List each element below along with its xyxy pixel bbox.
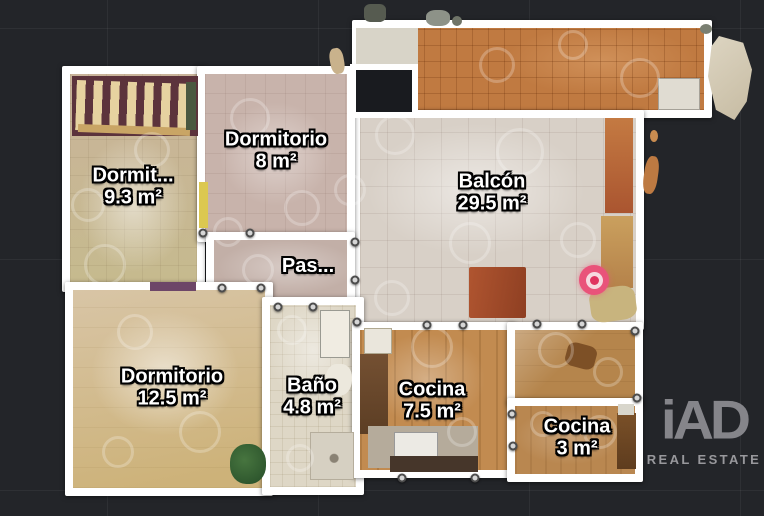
room-area: 4.8 m² [283,397,341,419]
room-label-dormitorio-9-3: Dormit... 9.3 m² [92,165,173,210]
terrace-scan-fragment [708,36,752,120]
iad-logo-text: iAD [644,393,764,448]
scan-watermark-ring [374,280,410,316]
floorplan-canvas: Dormit... 9.3 m² Dormitorio 8 m² Balcón … [0,0,764,516]
marker-core-dot [590,276,599,285]
shower-tray [310,432,354,480]
room-name: Dormitorio [225,129,327,151]
wall-junction-dot [274,303,283,312]
wall-junction-dot [351,276,360,285]
wall-junction-dot [351,238,360,247]
washing-machine [320,310,350,358]
scan-watermark-ring [411,326,453,368]
scan-watermark-ring [558,30,588,60]
wall-junction-dot [509,442,518,451]
room-label-balcon: Balcón 29.5 m² [458,171,527,216]
kitchen-cabinet-right [617,413,636,469]
wall-junction-dot [398,474,407,483]
bed-side-strip [186,82,196,130]
terrace-furniture-box [658,78,700,110]
wall-junction-dot [633,394,642,403]
kitchen-cabinet-dark [360,354,388,434]
purple-furniture-strip [150,282,196,291]
room-area: 7.5 m² [399,401,466,423]
room-label-dormitorio-12-5: Dormitorio 12.5 m² [121,366,223,411]
scan-watermark-ring [179,411,221,453]
scan-noise-blob [426,10,450,26]
scan-watermark-ring [102,436,134,468]
scan-watermark-ring [277,315,307,345]
wall-junction-dot [246,229,255,238]
room-label-bano: Baño 4.8 m² [283,375,341,420]
room-area: 3 m² [544,438,611,460]
wall-junction-dot [199,229,208,238]
scan-watermark-ring [242,254,274,286]
room-name: Dormitorio [121,366,223,388]
room-label-dormitorio-8: Dormitorio 8 m² [225,129,327,174]
wall-junction-dot [309,303,318,312]
wall-junction-dot [423,321,432,330]
room-area: 29.5 m² [458,193,527,215]
scan-noise-blob [650,130,658,142]
scan-watermark-ring [560,222,596,258]
small-white-appliance [618,404,634,415]
room-label-cocina-3: Cocina 3 m² [544,416,611,461]
wall-junction-dot [508,410,517,419]
room-label-cocina-7-5: Cocina 7.5 m² [399,379,466,424]
room-name: Baño [283,375,341,397]
iad-logo-tagline: REAL ESTATE [644,452,764,467]
scan-watermark-ring [538,332,574,368]
terrace-black-opening [350,64,418,118]
wall-junction-dot [257,284,266,293]
scan-noise-blob [700,24,712,34]
room-area: 8 m² [225,151,327,173]
wall-junction-dot [471,474,480,483]
room-name: Cocina [544,416,611,438]
scan-noise-blob [452,16,462,26]
fridge [364,328,392,354]
room-area: 9.3 m² [92,187,173,209]
scan-noise-blob [641,155,660,195]
room-name: Pas... [282,255,334,277]
scan-watermark-ring [117,314,153,350]
camera-position-marker[interactable] [579,265,609,295]
room-name: Dormit... [92,165,173,187]
scan-watermark-ring [375,115,415,155]
scan-watermark-ring [593,357,623,387]
scan-watermark-ring [479,47,515,83]
scan-watermark-ring [284,190,320,226]
wall-junction-dot [533,320,542,329]
wall-junction-dot [631,327,640,336]
wall-junction-dot [353,318,362,327]
room-name: Cocina [399,379,466,401]
scan-watermark-ring [496,128,544,176]
scan-watermark-ring [286,444,314,472]
iad-logo: iAD REAL ESTATE [644,392,764,467]
wall-junction-dot [459,321,468,330]
balcony-table [469,267,526,318]
scan-watermark-ring [334,174,366,206]
scan-noise-blob [364,4,386,22]
room-name: Balcón [458,171,527,193]
scan-watermark-ring [84,244,126,286]
scan-watermark-ring [213,217,243,247]
scan-watermark-ring [449,222,491,264]
door-yellow [199,182,208,228]
green-chair [230,444,266,484]
room-area: 12.5 m² [121,388,223,410]
balcony-wardrobe-strip [605,118,633,213]
scan-watermark-ring [620,58,660,98]
room-label-pasillo: Pas... [282,255,334,277]
scan-watermark-ring [134,132,170,168]
wall-junction-dot [578,320,587,329]
marker-inner-ring [586,272,603,289]
wall-junction-dot [218,284,227,293]
kitchen-counter-shadow [390,456,478,472]
